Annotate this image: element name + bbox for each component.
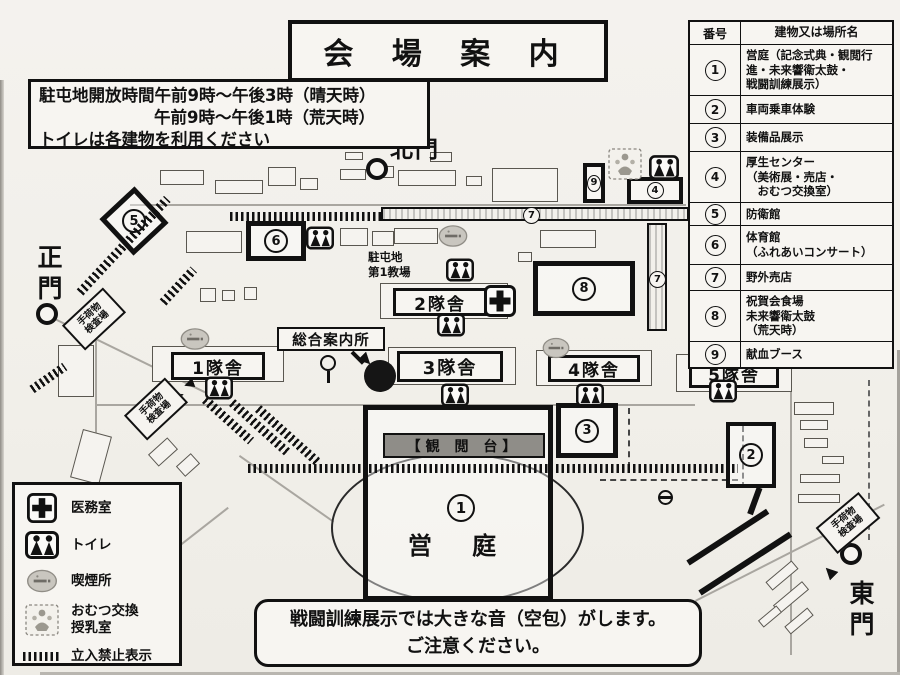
toilet-icon [437, 313, 465, 337]
diaper-change-icon [25, 604, 59, 636]
table-row: 4 厚生センター （美術展・売店・ おむつ交換室） [690, 152, 892, 203]
legend-label: 医務室 [71, 500, 112, 517]
building [215, 180, 263, 194]
building [798, 494, 840, 503]
building [372, 231, 394, 246]
row-name: 祝賀会食場 未来響衛太鼓 （荒天時） [741, 291, 892, 341]
dashed-line [600, 479, 738, 481]
table-row: 5 防衛館 [690, 203, 892, 226]
row-number: 3 [705, 127, 726, 148]
building-8-banquet: 8 [533, 261, 635, 316]
row-name: 営庭（記念式典・観閲行 進・未来響衛太鼓・ 戦闘訓練展示） [741, 45, 892, 95]
table-row: 7 野外売店 [690, 265, 892, 291]
strip-7-number: 7 [523, 207, 540, 224]
barracks-2: 2隊舎 [393, 288, 487, 316]
legend-label: 立入禁止表示 [71, 648, 152, 665]
building-5-bokan: 5 [99, 186, 168, 255]
flagpole-marker [320, 355, 336, 371]
building-3-number: 3 [575, 419, 599, 443]
medical-cross-icon [27, 493, 57, 523]
legend-item-smoking: 喫煙所 [23, 566, 171, 596]
building-3-equipment: 3 [556, 403, 618, 458]
opening-hours-line1: 駐屯地開放時間午前9時～午後3時（晴天時） [39, 85, 419, 107]
symbol-legend: 医務室 トイレ 喫煙所 おむつ交換 授乳室 立入禁止表示 [12, 482, 182, 666]
road [790, 390, 792, 655]
toilet-icon [205, 376, 233, 400]
building [398, 170, 456, 186]
main-gate-marker [36, 303, 58, 325]
toilet-icon [576, 383, 604, 407]
page-title-box: 会 場 案 内 [288, 20, 608, 82]
building [268, 167, 296, 186]
building [794, 402, 834, 415]
building [492, 168, 558, 202]
building [518, 252, 532, 262]
row-number: 2 [705, 99, 726, 120]
warning-box: 戦闘訓練展示では大きな音（空包）がします。 ご注意ください。 [254, 599, 702, 667]
row-name: 車両乗車体験 [741, 96, 892, 123]
barracks-3: 3隊舎 [397, 351, 503, 382]
row-name: 体育館 （ふれあいコンサート） [741, 226, 892, 264]
building [148, 437, 178, 466]
row-number: 4 [705, 167, 726, 188]
building [804, 438, 828, 448]
toilet-notice: トイレは各建物を利用ください [39, 129, 419, 151]
building [176, 453, 200, 477]
info-center-dot [364, 360, 396, 392]
table-row: 9 献血ブース [690, 342, 892, 367]
building [200, 288, 216, 302]
building [758, 605, 782, 627]
small-symbol-bar [660, 496, 671, 499]
legend-label: トイレ [71, 537, 112, 554]
row-number: 9 [705, 344, 726, 365]
smoking-area-icon [180, 327, 210, 351]
legend-label: 喫煙所 [71, 573, 112, 590]
barracks-4: 4隊舎 [548, 355, 640, 382]
no-entry-marking [248, 464, 738, 473]
table-row: 3 装備品展示 [690, 124, 892, 152]
building [340, 169, 366, 180]
building [300, 178, 318, 190]
building-4-number: 4 [647, 182, 664, 199]
table-row: 8 祝賀会食場 未来響衛太鼓 （荒天時） [690, 291, 892, 342]
building [340, 228, 368, 246]
opening-hours-box: 駐屯地開放時間午前9時～午後3時（晴天時） 午前9時～午後1時（荒天時） トイレ… [28, 79, 430, 149]
table-row: 1 営庭（記念式典・観閲行 進・未来響衛太鼓・ 戦闘訓練展示） [690, 45, 892, 96]
info-center-sign: 総合案内所 [277, 327, 385, 351]
no-entry-marking [230, 212, 382, 221]
row-name: 装備品展示 [741, 124, 892, 151]
medical-cross-icon [484, 285, 516, 317]
table-header-num: 番号 [690, 22, 741, 44]
building [70, 429, 112, 485]
parade-ground-number: 1 [447, 494, 475, 522]
toilet-icon [306, 226, 334, 250]
building [160, 170, 204, 185]
legend-item-diaper: おむつ交換 授乳室 [23, 601, 171, 639]
reviewing-stand-label: 【観 閲 台】 [407, 436, 522, 456]
classroom-label: 駐屯地 第1教場 [368, 250, 424, 280]
main-gate-label: 正門 [30, 244, 66, 306]
info-center-label: 総合案内所 [292, 329, 370, 350]
table-row: 2 車両乗車体験 [690, 96, 892, 124]
table-header-name: 建物又は場所名 [741, 22, 892, 44]
row-number: 6 [705, 235, 726, 256]
toilet-icon [709, 379, 737, 403]
table-header-row: 番号 建物又は場所名 [690, 22, 892, 45]
toilet-icon [446, 258, 474, 282]
row-name: 野外売店 [741, 265, 892, 290]
warning-line1: 戦闘訓練展示では大きな音（空包）がします。 [290, 606, 666, 633]
baggage-check-sign: 手荷物 検査場 [62, 287, 126, 350]
diaper-change-icon [608, 148, 642, 180]
road [130, 204, 686, 206]
scan-edge [0, 80, 4, 675]
toilet-icon [441, 383, 469, 407]
building [394, 228, 438, 244]
building [186, 231, 242, 253]
row-name: 厚生センター （美術展・売店・ おむつ交換室） [741, 152, 892, 202]
building [784, 608, 813, 635]
building-2-number: 2 [739, 443, 763, 467]
building-4-welfare: 4 [627, 177, 683, 204]
building [765, 560, 798, 590]
building-9-number: 9 [587, 175, 601, 192]
page-title: 会 場 案 内 [323, 29, 572, 73]
building-9-blood: 9 [583, 163, 605, 203]
parade-ground-label: 営 庭 [398, 526, 522, 561]
smoking-area-icon [25, 569, 59, 593]
legend-item-toilet: トイレ [23, 529, 171, 561]
outdoor-shops-strip-horizontal: 7 [381, 207, 689, 221]
building-6-gym: 6 [246, 221, 306, 261]
smoking-area-icon [542, 337, 570, 359]
barracks-1-label: 1隊舎 [192, 354, 244, 379]
east-gate-label: 東門 [842, 580, 878, 642]
small-symbol [658, 490, 673, 505]
building [222, 290, 235, 301]
no-entry-marking [160, 267, 197, 306]
building-8-number: 8 [572, 277, 596, 301]
route-arrow [822, 564, 839, 581]
barracks-3-label: 3隊舎 [423, 354, 478, 380]
building [466, 176, 482, 186]
toilet-icon [649, 155, 679, 180]
baggage-check-sign: 手荷物 検査場 [124, 377, 188, 440]
strip-7-number: 7 [649, 271, 666, 288]
table-row: 6 体育館 （ふれあいコンサート） [690, 226, 892, 265]
legend-item-no-entry: 立入禁止表示 [23, 644, 171, 668]
legend-label: おむつ交換 授乳室 [71, 603, 139, 637]
toilet-icon [25, 531, 59, 559]
building [800, 474, 840, 483]
building [244, 287, 257, 300]
building [800, 420, 828, 430]
row-name: 献血ブース [741, 342, 892, 367]
building [540, 230, 596, 248]
opening-hours-line2: 午前9時～午後1時（荒天時） [39, 107, 419, 129]
row-number: 7 [705, 267, 726, 288]
dashed-line [628, 408, 630, 468]
row-name: 防衛館 [741, 203, 892, 225]
building [345, 152, 363, 160]
barracks-2-label: 2隊舎 [414, 290, 466, 315]
row-number: 8 [705, 306, 726, 327]
smoking-area-icon [438, 224, 468, 248]
row-number: 1 [705, 60, 726, 81]
barracks-4-label: 4隊舎 [568, 356, 620, 381]
no-entry-icon [23, 652, 61, 661]
building [822, 456, 844, 464]
flagpole-stem [327, 371, 330, 383]
north-gate-marker [366, 158, 388, 180]
reviewing-stand: 【観 閲 台】 [383, 433, 545, 458]
legend-item-medical: 医務室 [23, 492, 171, 524]
building-legend-table: 番号 建物又は場所名 1 営庭（記念式典・観閲行 進・未来響衛太鼓・ 戦闘訓練展… [688, 20, 894, 369]
building-2-vehicle: 2 [726, 422, 776, 488]
building-6-number: 6 [264, 229, 288, 253]
outdoor-shops-strip-vertical: 7 [647, 223, 667, 331]
warning-line2: ご注意ください。 [406, 633, 550, 660]
row-number: 5 [705, 204, 726, 225]
route-line [698, 532, 792, 596]
